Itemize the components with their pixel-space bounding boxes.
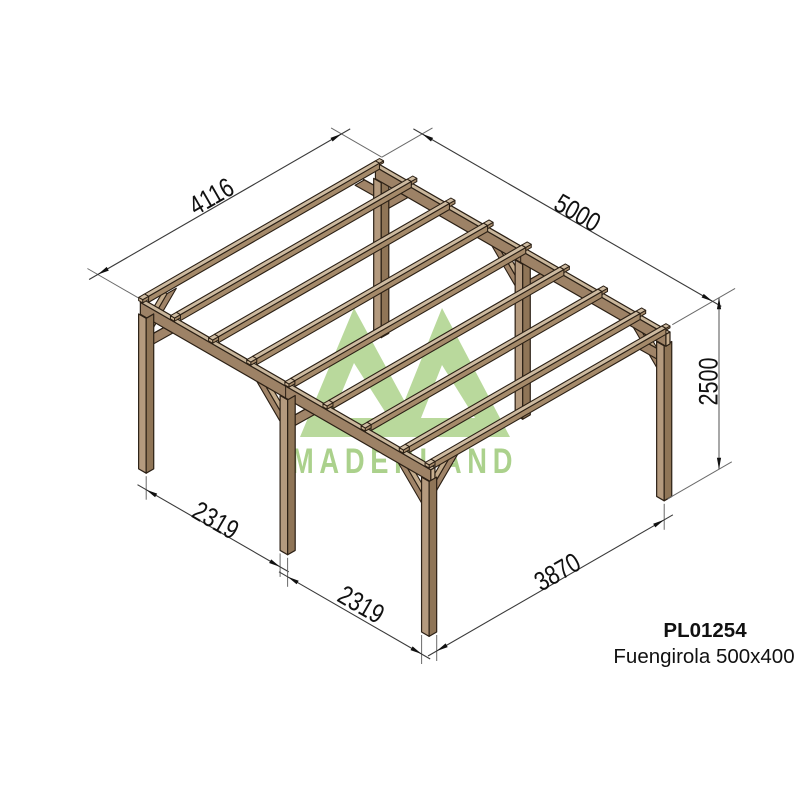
- svg-text:2500: 2500: [694, 357, 724, 405]
- svg-text:Fuengirola 500x400: Fuengirola 500x400: [613, 645, 794, 668]
- svg-text:PL01254: PL01254: [663, 619, 747, 642]
